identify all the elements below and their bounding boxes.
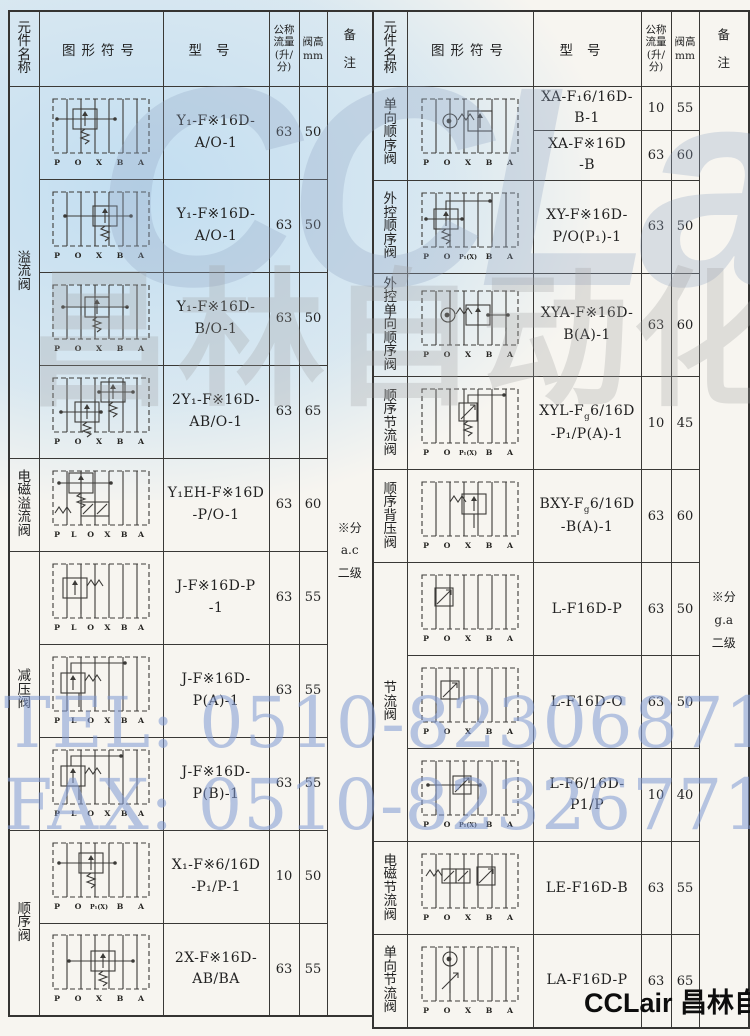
svg-text:X: X xyxy=(465,634,472,643)
model-cell: L-F16D-P xyxy=(533,563,641,656)
svg-text:B: B xyxy=(486,541,493,550)
relief-valve-symbol-icon: POXBA xyxy=(39,86,163,179)
svg-text:X: X xyxy=(104,623,111,632)
sequence-throttle-valve-symbol-icon: POP₁(X)BA xyxy=(407,377,533,470)
model-cell: Y₁EH-F※16D -P/O-1 xyxy=(163,458,269,551)
svg-text:P: P xyxy=(423,158,429,167)
svg-text:X: X xyxy=(465,350,472,359)
svg-text:X: X xyxy=(96,437,103,446)
svg-text:P: P xyxy=(423,820,429,829)
model-cell: Y₁-F※16D- A/O-1 xyxy=(163,86,269,179)
svg-text:O: O xyxy=(75,158,82,167)
svg-text:P: P xyxy=(423,1006,429,1015)
svg-text:A: A xyxy=(506,541,514,550)
header-valve-height: 阀高 mm xyxy=(671,11,699,86)
table-row: 外控顺序阀 POP₁(X)BA XY-F※16D- P/O(P₁)-1 63 5… xyxy=(373,180,749,273)
height-cell: 50 xyxy=(671,656,699,749)
svg-text:O: O xyxy=(87,809,94,818)
table-row: 电磁节流阀 POXBA LE-F16D-B 63 55 xyxy=(373,842,749,935)
flow-cell: 63 xyxy=(269,272,299,365)
flow-cell: 63 xyxy=(269,365,299,458)
flow-cell: 63 xyxy=(641,470,671,563)
flow-cell: 63 xyxy=(641,656,671,749)
table-row: POXBA Y₁-F※16D- A/O-1 63 50 xyxy=(9,179,373,272)
svg-text:B: B xyxy=(121,809,128,818)
height-cell: 55 xyxy=(671,842,699,935)
table-row: 顺序背压阀 POXBA BXY-Fg6/16D -B(A)-1 63 60 xyxy=(373,470,749,563)
table-row: 溢流阀 POXBA Y₁-F※16D- A/O-1 63 50 ※分 a.c 二… xyxy=(9,86,373,179)
svg-text:O: O xyxy=(444,541,451,550)
svg-text:A: A xyxy=(506,634,514,643)
svg-text:O: O xyxy=(444,634,451,643)
model-cell: Y₁-F※16D- A/O-1 xyxy=(163,179,269,272)
svg-text:L: L xyxy=(71,530,77,539)
height-cell: 50 xyxy=(299,830,327,923)
svg-text:P: P xyxy=(54,530,60,539)
solenoid-throttle-valve-symbol-icon: POXBA xyxy=(407,842,533,935)
svg-text:O: O xyxy=(444,820,451,829)
svg-text:A: A xyxy=(137,623,145,632)
table-row: POP₁(X)BA L-F6/16D- P1/P 10 40 xyxy=(373,749,749,842)
table-row: 节流阀 POXBA L-F16D-P 63 50 xyxy=(373,563,749,656)
svg-text:B: B xyxy=(117,158,124,167)
remark-cell: ※分 g.a 二级 xyxy=(699,86,749,1028)
table-row: POXBA Y₁-F※16D- B/O-1 63 50 xyxy=(9,272,373,365)
svg-text:A: A xyxy=(506,448,514,457)
svg-text:P: P xyxy=(423,727,429,736)
svg-text:A: A xyxy=(137,994,145,1003)
svg-text:P: P xyxy=(54,994,60,1003)
svg-text:O: O xyxy=(75,902,82,911)
svg-text:X: X xyxy=(104,809,111,818)
height-cell: 60 xyxy=(671,273,699,377)
svg-text:B: B xyxy=(486,1006,493,1015)
table-row: 减压阀 PLOXBA J-F※16D-P -1 63 55 xyxy=(9,551,373,644)
svg-text:A: A xyxy=(137,716,145,725)
model-cell: J-F※16D- P(A)-1 xyxy=(163,644,269,737)
height-cell: 55 xyxy=(671,86,699,130)
svg-text:O: O xyxy=(87,530,94,539)
model-cell: 2Y₁-F※16D- AB/O-1 xyxy=(163,365,269,458)
component-name-cell: 电磁溢流阀 xyxy=(9,458,39,551)
flow-cell: 63 xyxy=(269,86,299,179)
flow-cell: 63 xyxy=(641,130,671,180)
svg-text:A: A xyxy=(137,158,145,167)
svg-text:P: P xyxy=(54,716,60,725)
flow-cell: 63 xyxy=(269,644,299,737)
svg-text:X: X xyxy=(104,530,111,539)
header-valve-height: 阀高 mm xyxy=(299,11,327,86)
flow-cell: 63 xyxy=(641,273,671,377)
flow-cell: 63 xyxy=(641,180,671,273)
header-remark: 备 注 xyxy=(699,11,749,86)
svg-text:P: P xyxy=(423,634,429,643)
left-catalog-table: 元件名称 图形符号 型号 公称 流量 (升/ 分) 阀高 mm 备 注 溢流阀 … xyxy=(8,10,374,1017)
header-component-name: 元件名称 xyxy=(373,11,407,86)
flow-cell: 63 xyxy=(269,551,299,644)
height-cell: 50 xyxy=(671,563,699,656)
dual-relief-valve-symbol-icon: POXBA xyxy=(39,365,163,458)
component-name-cell: 顺序节流阀 xyxy=(373,377,407,470)
svg-text:B: B xyxy=(486,634,493,643)
svg-text:P: P xyxy=(54,158,60,167)
relief-valve-symbol-icon: POXBA xyxy=(39,179,163,272)
reducing-valve-symbol-icon: PLOXBA xyxy=(39,551,163,644)
height-cell: 50 xyxy=(299,179,327,272)
svg-text:O: O xyxy=(444,1006,451,1015)
svg-text:P: P xyxy=(54,251,60,260)
svg-text:A: A xyxy=(506,252,514,261)
model-cell: J-F※16D-P -1 xyxy=(163,551,269,644)
svg-text:A: A xyxy=(506,1006,514,1015)
svg-text:P₁(X): P₁(X) xyxy=(459,822,477,829)
reducing-valve-symbol-icon: PLOXBA xyxy=(39,644,163,737)
throttle-valve-symbol-icon: POP₁(X)BA xyxy=(407,749,533,842)
svg-text:L: L xyxy=(71,809,77,818)
header-graphic-symbol: 图形符号 xyxy=(407,11,533,86)
svg-text:P: P xyxy=(54,344,60,353)
svg-text:A: A xyxy=(137,251,145,260)
component-name-cell: 节流阀 xyxy=(373,563,407,842)
svg-text:P: P xyxy=(54,902,60,911)
svg-text:O: O xyxy=(87,623,94,632)
svg-text:O: O xyxy=(87,716,94,725)
model-cell: J-F※16D- P(B)-1 xyxy=(163,737,269,830)
flow-cell: 63 xyxy=(641,842,671,935)
height-cell: 60 xyxy=(671,130,699,180)
svg-text:O: O xyxy=(444,252,451,261)
svg-text:P₁(X): P₁(X) xyxy=(459,450,477,457)
height-cell: 40 xyxy=(671,749,699,842)
svg-text:X: X xyxy=(465,913,472,922)
table-header-row: 元件名称 图形符号 型号 公称 流量 (升/ 分) 阀高 mm 备 注 xyxy=(373,11,749,86)
reducing-valve-symbol-icon: PLOXBA xyxy=(39,737,163,830)
flow-cell: 10 xyxy=(641,377,671,470)
header-component-name: 元件名称 xyxy=(9,11,39,86)
svg-text:B: B xyxy=(117,902,124,911)
height-cell: 55 xyxy=(299,551,327,644)
model-cell: XY-F※16D- P/O(P₁)-1 xyxy=(533,180,641,273)
svg-text:O: O xyxy=(444,913,451,922)
svg-text:P₁(X): P₁(X) xyxy=(90,904,108,911)
flow-cell: 63 xyxy=(641,563,671,656)
height-cell: 50 xyxy=(671,180,699,273)
svg-text:B: B xyxy=(117,437,124,446)
height-cell: 50 xyxy=(299,272,327,365)
svg-text:P: P xyxy=(54,809,60,818)
svg-text:A: A xyxy=(137,809,145,818)
throttle-valve-symbol-icon: POXBA xyxy=(407,656,533,749)
svg-text:B: B xyxy=(121,530,128,539)
brand-footer-text: CCLair 昌林自动化 xyxy=(584,981,750,1020)
header-flow: 公称 流量 (升/ 分) xyxy=(641,11,671,86)
flow-cell: 63 xyxy=(269,179,299,272)
flow-cell: 10 xyxy=(269,830,299,923)
throttle-valve-symbol-icon: POXBA xyxy=(407,563,533,656)
svg-text:P: P xyxy=(54,623,60,632)
flow-cell: 10 xyxy=(641,86,671,130)
table-header-row: 元件名称 图形符号 型号 公称 流量 (升/ 分) 阀高 mm 备 注 xyxy=(9,11,373,86)
svg-text:O: O xyxy=(444,727,451,736)
back-pressure-valve-symbol-icon: POXBA xyxy=(407,470,533,563)
svg-text:A: A xyxy=(506,913,514,922)
svg-text:B: B xyxy=(486,252,493,261)
svg-text:B: B xyxy=(117,344,124,353)
component-name-cell: 顺序阀 xyxy=(9,830,39,1016)
svg-text:A: A xyxy=(506,727,514,736)
svg-text:B: B xyxy=(121,716,128,725)
table-row: 顺序节流阀 POP₁(X)BA XYL-Fg6/16D -P₁/P(A)-1 1… xyxy=(373,377,749,470)
svg-text:B: B xyxy=(486,913,493,922)
component-name-cell: 外控单向顺序阀 xyxy=(373,273,407,377)
height-cell: 45 xyxy=(671,377,699,470)
check-sequence-valve-symbol-icon: POXBA xyxy=(407,86,533,180)
relief-valve-symbol-icon: POXBA xyxy=(39,272,163,365)
svg-text:B: B xyxy=(121,623,128,632)
right-catalog-table: 元件名称 图形符号 型号 公称 流量 (升/ 分) 阀高 mm 备 注 单向顺序… xyxy=(372,10,750,1029)
svg-text:X: X xyxy=(465,541,472,550)
header-remark: 备 注 xyxy=(327,11,373,86)
height-cell: 60 xyxy=(671,470,699,563)
model-cell: LE-F16D-B xyxy=(533,842,641,935)
svg-text:X: X xyxy=(96,344,103,353)
svg-text:L: L xyxy=(71,623,77,632)
model-cell: XYA-F※16D- B(A)-1 xyxy=(533,273,641,377)
model-cell: BXY-Fg6/16D -B(A)-1 xyxy=(533,470,641,563)
svg-text:A: A xyxy=(506,350,514,359)
header-flow: 公称 流量 (升/ 分) xyxy=(269,11,299,86)
height-cell: 50 xyxy=(299,86,327,179)
svg-text:X: X xyxy=(465,158,472,167)
svg-text:X: X xyxy=(96,251,103,260)
pilot-check-sequence-valve-symbol-icon: POXBA xyxy=(407,273,533,377)
height-cell: 60 xyxy=(299,458,327,551)
svg-text:B: B xyxy=(486,350,493,359)
svg-text:A: A xyxy=(137,344,145,353)
svg-text:P: P xyxy=(423,541,429,550)
model-cell: XA-F※16D -B xyxy=(533,130,641,180)
svg-text:B: B xyxy=(486,158,493,167)
svg-text:O: O xyxy=(75,344,82,353)
pilot-sequence-valve-symbol-icon: POP₁(X)BA xyxy=(407,180,533,273)
dual-sequence-valve-symbol-icon: POXBA xyxy=(39,923,163,1016)
svg-text:O: O xyxy=(75,994,82,1003)
catalog-page: 元件名称 图形符号 型号 公称 流量 (升/ 分) 阀高 mm 备 注 溢流阀 … xyxy=(0,0,750,1036)
component-name-cell: 减压阀 xyxy=(9,551,39,830)
header-model: 型号 xyxy=(163,11,269,86)
svg-text:A: A xyxy=(506,820,514,829)
sequence-valve-symbol-icon: POP₁(X)BA xyxy=(39,830,163,923)
table-row: POXBA 2Y₁-F※16D- AB/O-1 63 65 xyxy=(9,365,373,458)
model-cell: L-F6/16D- P1/P xyxy=(533,749,641,842)
component-name-cell: 单向节流阀 xyxy=(373,935,407,1028)
table-row: PLOXBA J-F※16D- P(B)-1 63 55 xyxy=(9,737,373,830)
solenoid-relief-valve-symbol-icon: PLOXBA xyxy=(39,458,163,551)
component-name-cell: 单向顺序阀 xyxy=(373,86,407,180)
flow-cell: 63 xyxy=(269,923,299,1016)
svg-text:X: X xyxy=(96,158,103,167)
model-cell: XA-F₁6/16D- B-1 xyxy=(533,86,641,130)
table-row: POXBA 2X-F※16D- AB/BA 63 55 xyxy=(9,923,373,1016)
svg-text:B: B xyxy=(117,251,124,260)
table-row: 顺序阀 POP₁(X)BA X₁-F※6/16D -P₁/P-1 10 50 xyxy=(9,830,373,923)
component-name-cell: 电磁节流阀 xyxy=(373,842,407,935)
component-name-cell: 外控顺序阀 xyxy=(373,180,407,273)
svg-text:P: P xyxy=(423,252,429,261)
component-name-cell: 溢流阀 xyxy=(9,86,39,458)
height-cell: 55 xyxy=(299,644,327,737)
svg-text:X: X xyxy=(465,727,472,736)
svg-text:O: O xyxy=(75,437,82,446)
model-cell: Y₁-F※16D- B/O-1 xyxy=(163,272,269,365)
svg-text:O: O xyxy=(75,251,82,260)
svg-text:P: P xyxy=(423,350,429,359)
component-name-cell: 顺序背压阀 xyxy=(373,470,407,563)
height-cell: 55 xyxy=(299,737,327,830)
flow-cell: 10 xyxy=(641,749,671,842)
svg-text:A: A xyxy=(137,437,145,446)
svg-text:X: X xyxy=(465,1006,472,1015)
svg-text:B: B xyxy=(486,448,493,457)
height-cell: 55 xyxy=(299,923,327,1016)
flow-cell: 63 xyxy=(269,737,299,830)
model-cell: XYL-Fg6/16D -P₁/P(A)-1 xyxy=(533,377,641,470)
flow-cell: 63 xyxy=(269,458,299,551)
table-row: PLOXBA J-F※16D- P(A)-1 63 55 xyxy=(9,644,373,737)
svg-text:P: P xyxy=(54,437,60,446)
header-model: 型号 xyxy=(533,11,641,86)
model-cell: 2X-F※16D- AB/BA xyxy=(163,923,269,1016)
svg-text:O: O xyxy=(444,448,451,457)
table-row: 外控单向顺序阀 POXBA XYA-F※16D- B(A)-1 63 60 xyxy=(373,273,749,377)
svg-text:X: X xyxy=(104,716,111,725)
check-throttle-valve-symbol-icon: POXBA xyxy=(407,935,533,1028)
svg-text:P₁(X): P₁(X) xyxy=(459,254,477,261)
svg-text:L: L xyxy=(71,716,77,725)
svg-text:B: B xyxy=(117,994,124,1003)
svg-text:P: P xyxy=(423,448,429,457)
svg-text:A: A xyxy=(506,158,514,167)
remark-cell: ※分 a.c 二级 xyxy=(327,86,373,1016)
height-cell: 65 xyxy=(299,365,327,458)
svg-text:A: A xyxy=(137,530,145,539)
svg-text:O: O xyxy=(444,158,451,167)
header-graphic-symbol: 图形符号 xyxy=(39,11,163,86)
svg-text:A: A xyxy=(137,902,145,911)
model-cell: X₁-F※6/16D -P₁/P-1 xyxy=(163,830,269,923)
table-row: 单向顺序阀 POXBA XA-F₁6/16D- B-1 10 55 ※分 g.a… xyxy=(373,86,749,130)
svg-text:O: O xyxy=(444,350,451,359)
table-row: POXBA L-F16D-O 63 50 xyxy=(373,656,749,749)
table-row: 电磁溢流阀 PLOXBA Y₁EH-F※16D -P/O-1 63 60 xyxy=(9,458,373,551)
svg-text:B: B xyxy=(486,727,493,736)
svg-text:X: X xyxy=(96,994,103,1003)
svg-text:P: P xyxy=(423,913,429,922)
svg-text:B: B xyxy=(486,820,493,829)
model-cell: L-F16D-O xyxy=(533,656,641,749)
